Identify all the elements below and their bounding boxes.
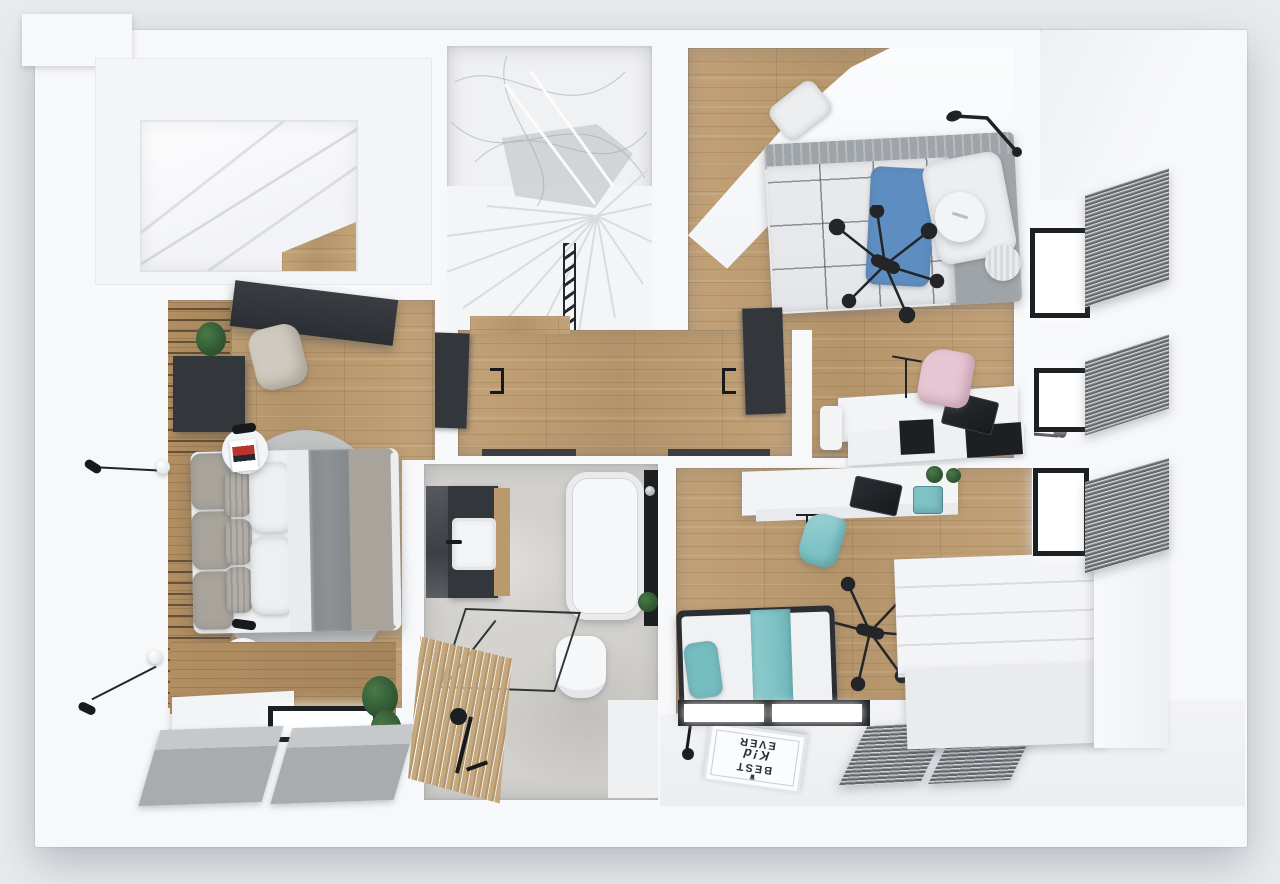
teal-storage-box [913,486,943,514]
plant-on-wardrobe [196,322,226,356]
folded-mat-left [138,726,283,806]
knit-pillow-1 [223,471,252,517]
dresser-top [894,553,1100,678]
stairs-and-wires [447,46,652,332]
knit-pillow-3 [224,567,253,613]
wall-lamp-sphere-2 [148,650,162,664]
desk-wire-lamp [905,358,907,398]
kids-window-right [1033,468,1089,556]
wall-lamp-sphere-1 [156,460,170,474]
bath-bench [608,700,658,798]
window-right-2 [1034,368,1090,432]
dark-wardrobe [173,356,245,432]
white-ottoman [820,406,842,450]
floor-lamp-base [682,748,694,760]
corner-seam [1040,30,1247,200]
door-threshold-1 [482,449,576,456]
shower-fixture-head [450,708,467,725]
kids-plant-1 [926,466,943,483]
hallway-floor [458,330,792,456]
sink-faucet [446,540,462,544]
hallway-door-left [430,332,469,428]
poster-top [229,439,258,473]
rug-text: ♛ BEST K!d EVER [733,734,777,783]
bath-plant [638,592,658,612]
wall-lamp-top-right [945,106,1025,161]
stairwell [447,46,652,332]
door-handle-right [722,368,736,394]
door-handle-left [490,368,504,394]
window-right-1 [1030,228,1090,318]
knit-pillow-2 [224,519,253,565]
floor-plan-scene: ♛ BEST K!d EVER [0,0,1280,884]
vanity-wood-side [494,488,510,596]
kids-window-pane-2 [772,704,862,722]
hallway-door-right [742,307,786,414]
desk-drawer-black-1 [899,419,935,455]
hallway-floor-upper [470,316,570,334]
sink [452,518,496,570]
tub-fixture [645,486,655,496]
bathtub [566,472,644,620]
dresser-front [905,663,1106,750]
kids-window-pane-1 [684,704,764,722]
spider-ceiling-lamp [825,205,945,325]
kids-plant-2 [946,468,961,483]
folded-mat-right [270,724,415,804]
master-bed [190,448,401,634]
door-threshold-2 [668,449,770,456]
woven-basket [985,245,1021,281]
